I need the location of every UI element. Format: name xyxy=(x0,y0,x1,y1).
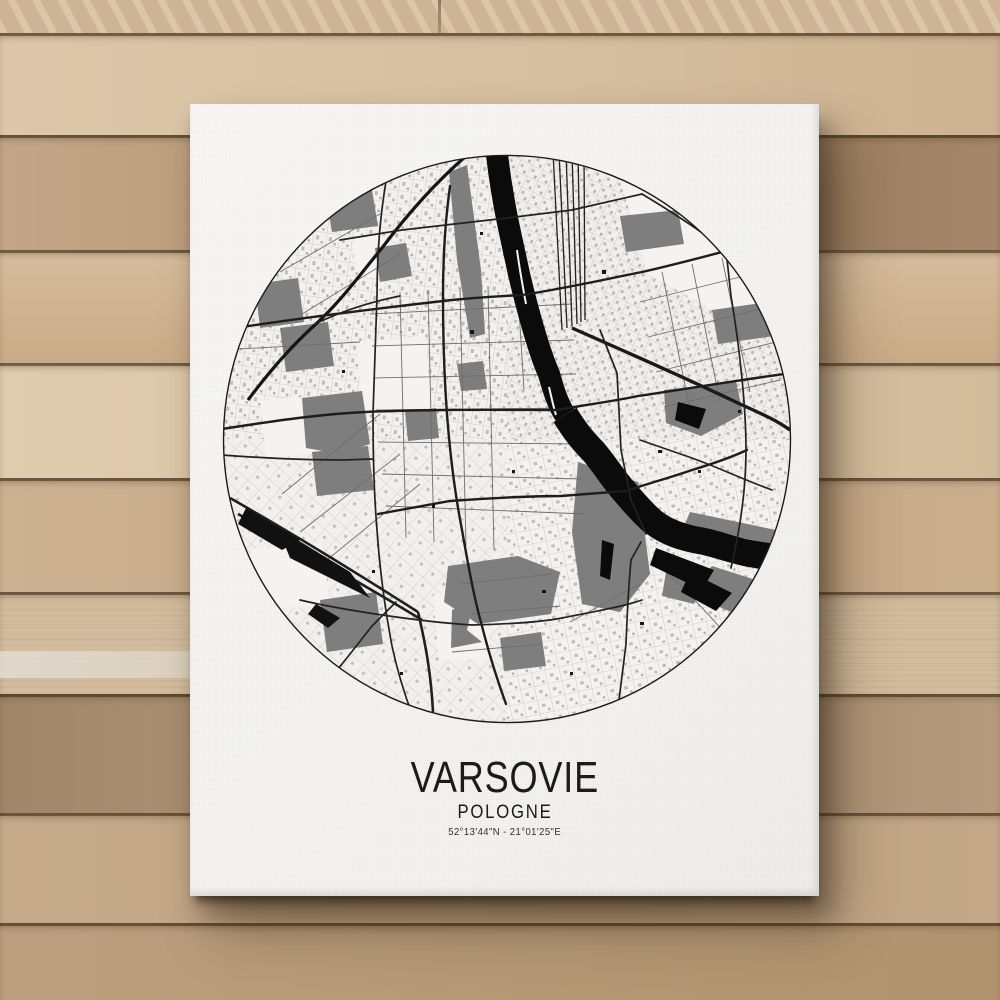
product-photo-scene: VARSOVIE POLOGNE 52°13'44"N - 21°01'25"E xyxy=(0,0,1000,1000)
city-name: VARSOVIE xyxy=(410,756,598,800)
wood-plank xyxy=(0,923,1000,1000)
title-block: VARSOVIE POLOGNE 52°13'44"N - 21°01'25"E xyxy=(190,756,819,838)
wood-plank-joint xyxy=(438,0,441,33)
wood-plank xyxy=(0,0,1000,33)
country-name: POLOGNE xyxy=(190,803,819,822)
canvas-print: VARSOVIE POLOGNE 52°13'44"N - 21°01'25"E xyxy=(190,104,819,896)
gps-coordinates: 52°13'44"N - 21°01'25"E xyxy=(190,827,819,838)
map-container xyxy=(220,152,794,726)
city-map-svg xyxy=(220,152,794,726)
